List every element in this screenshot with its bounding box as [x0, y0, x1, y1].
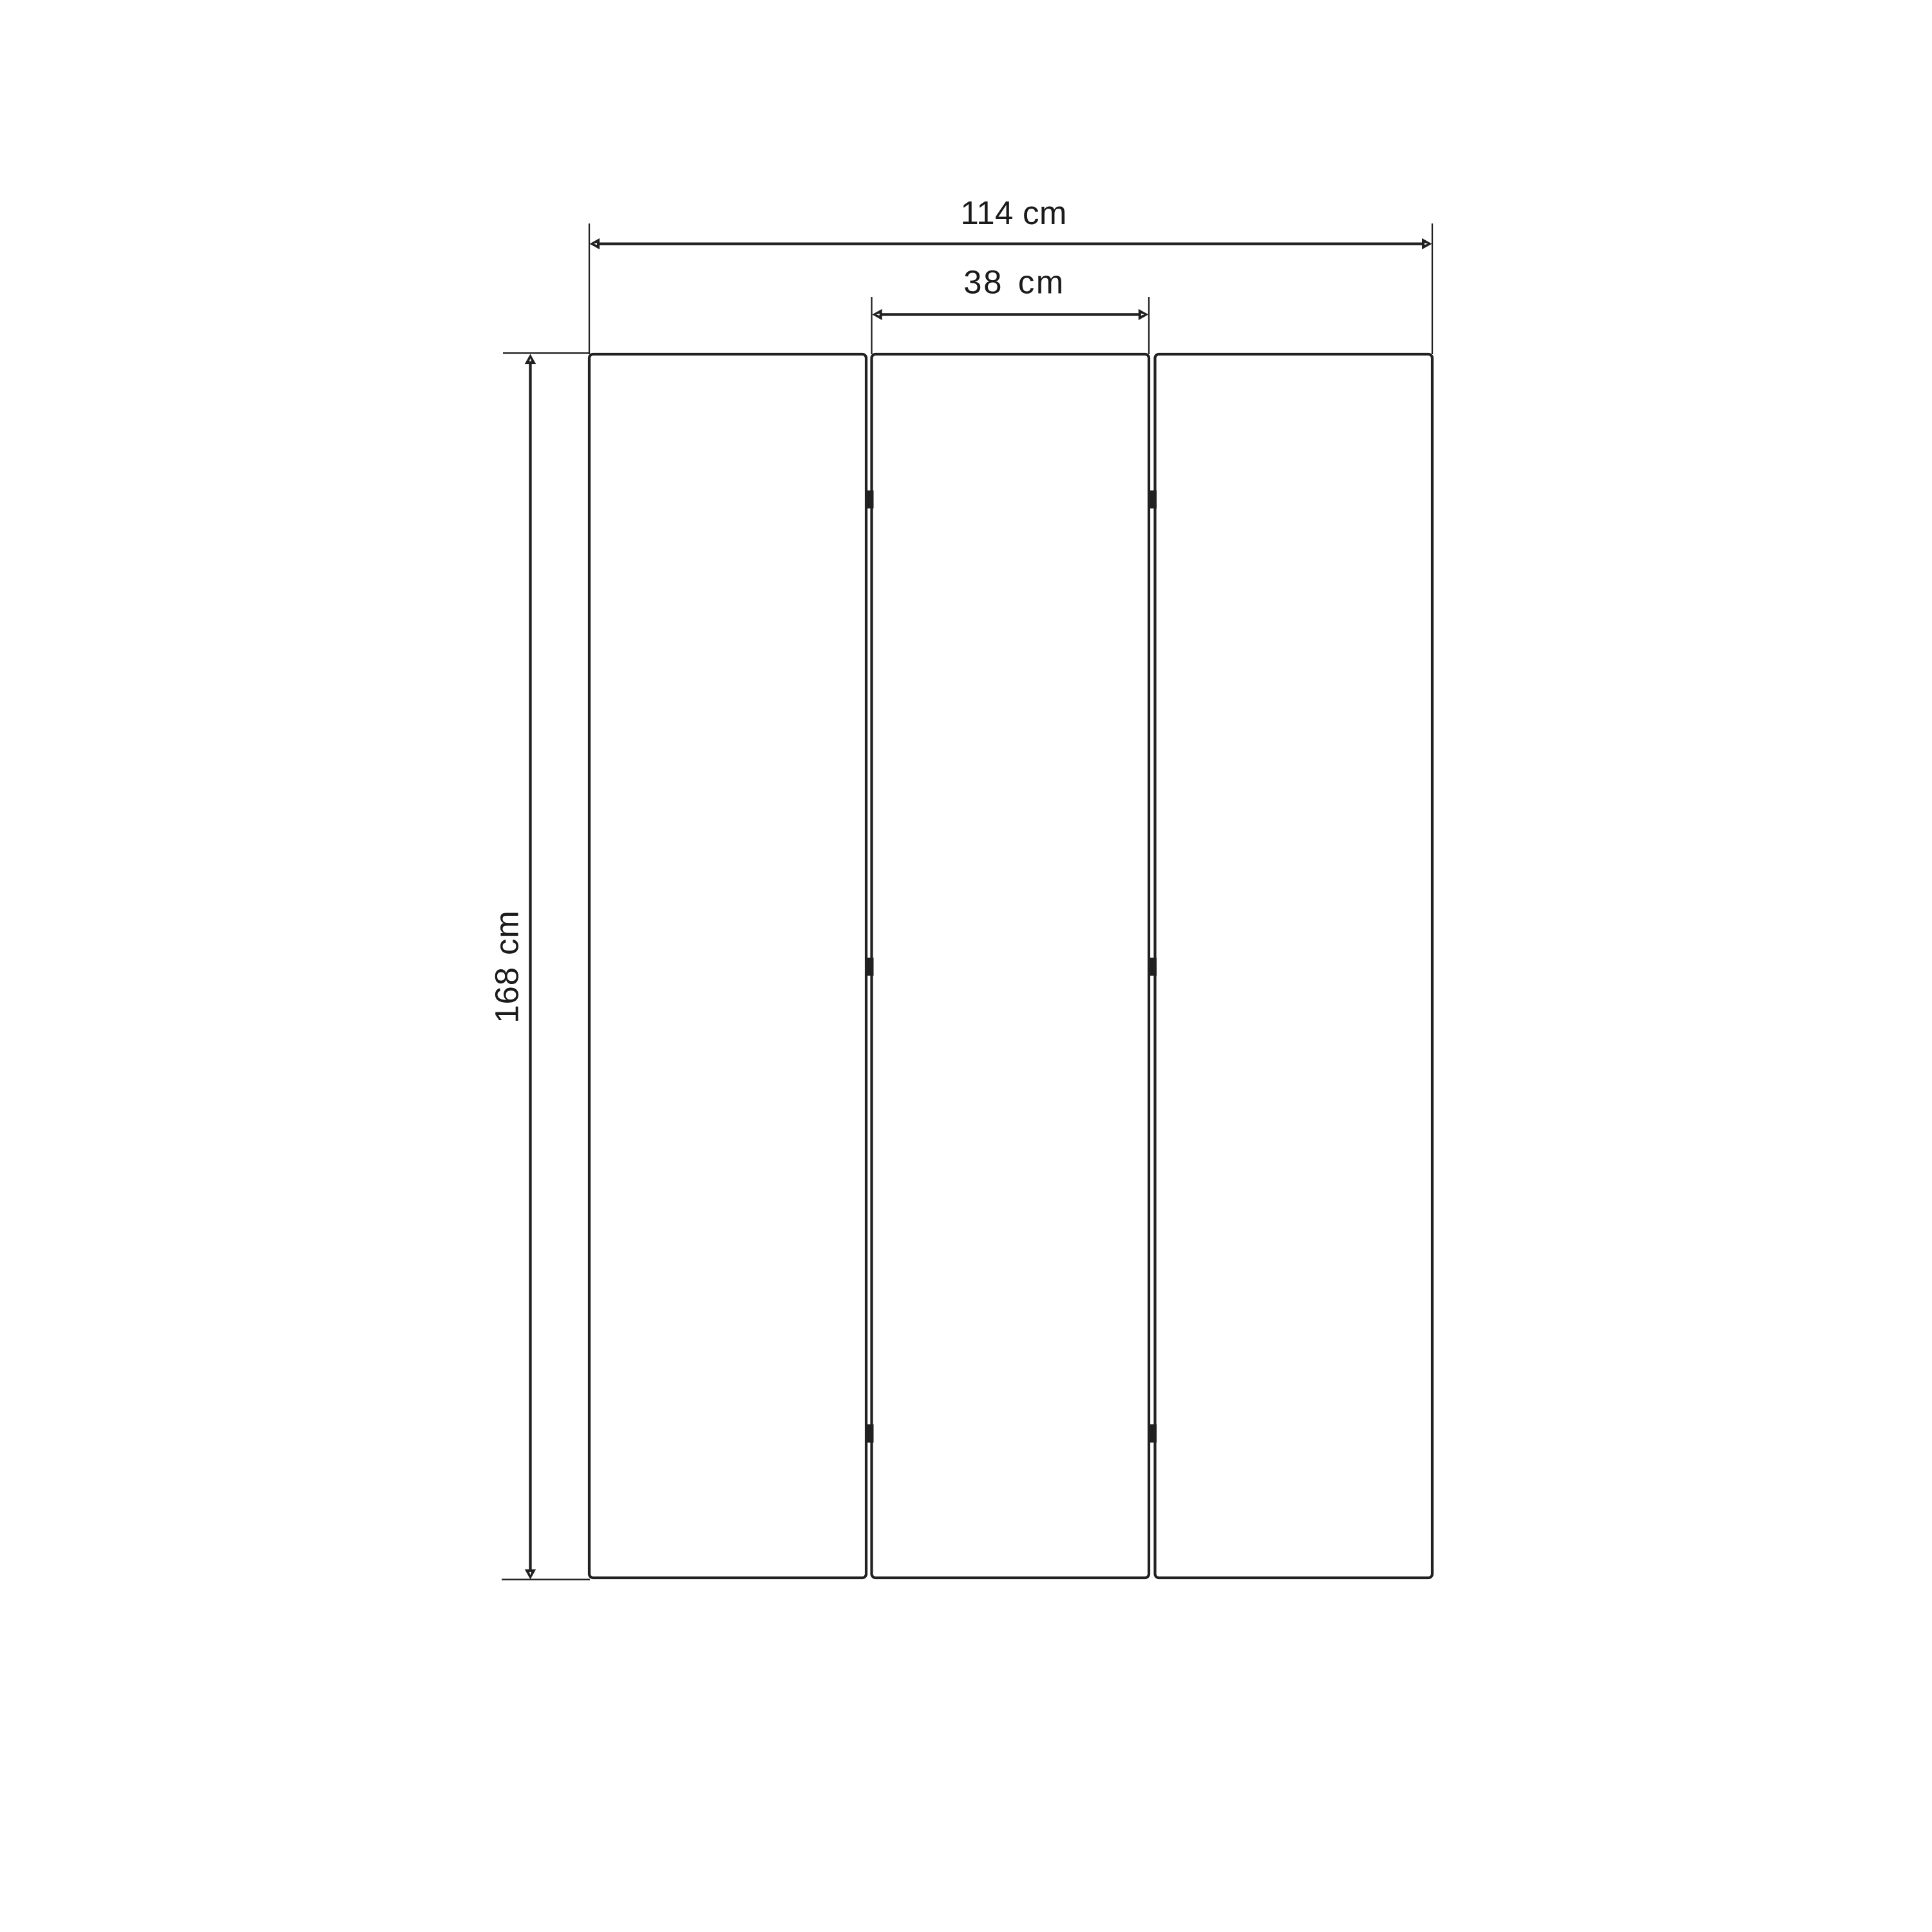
- svg-text:38 cm: 38 cm: [963, 264, 1065, 301]
- svg-text:114 cm: 114 cm: [960, 194, 1066, 231]
- svg-text:168 cm: 168 cm: [489, 910, 526, 1023]
